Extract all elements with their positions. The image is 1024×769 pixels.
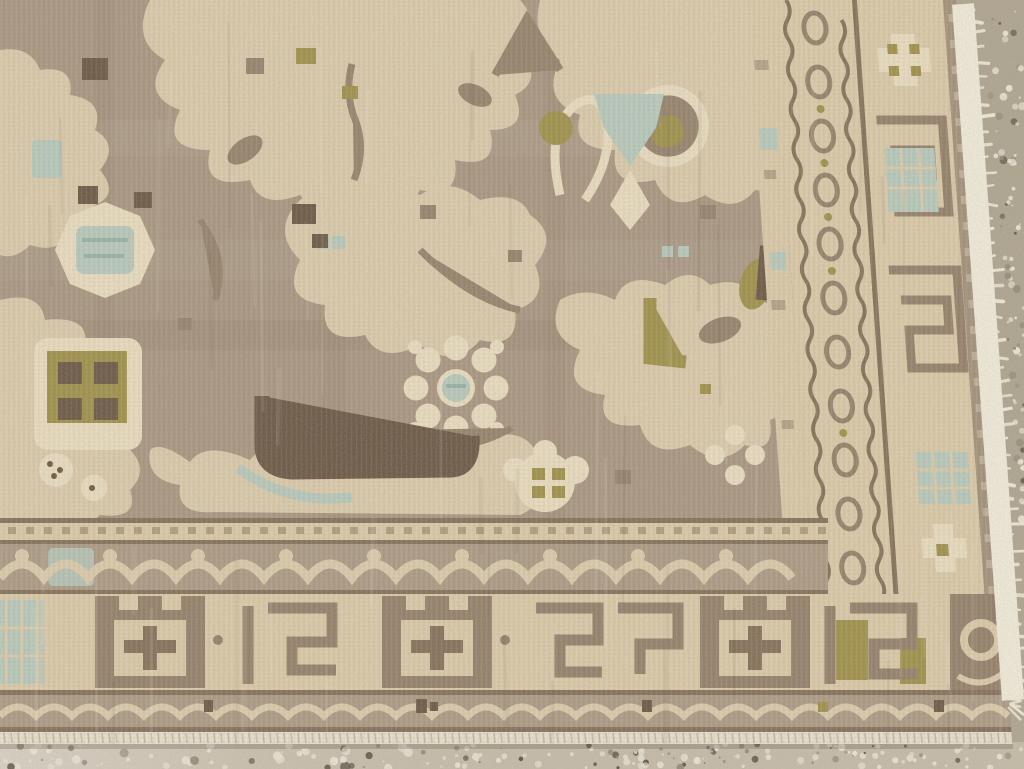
grain-light-overlay xyxy=(0,0,1024,769)
photo-canvas: Close-up of the lower-right corner of a … xyxy=(0,0,1024,769)
rug-photo-illustration xyxy=(0,0,1024,769)
